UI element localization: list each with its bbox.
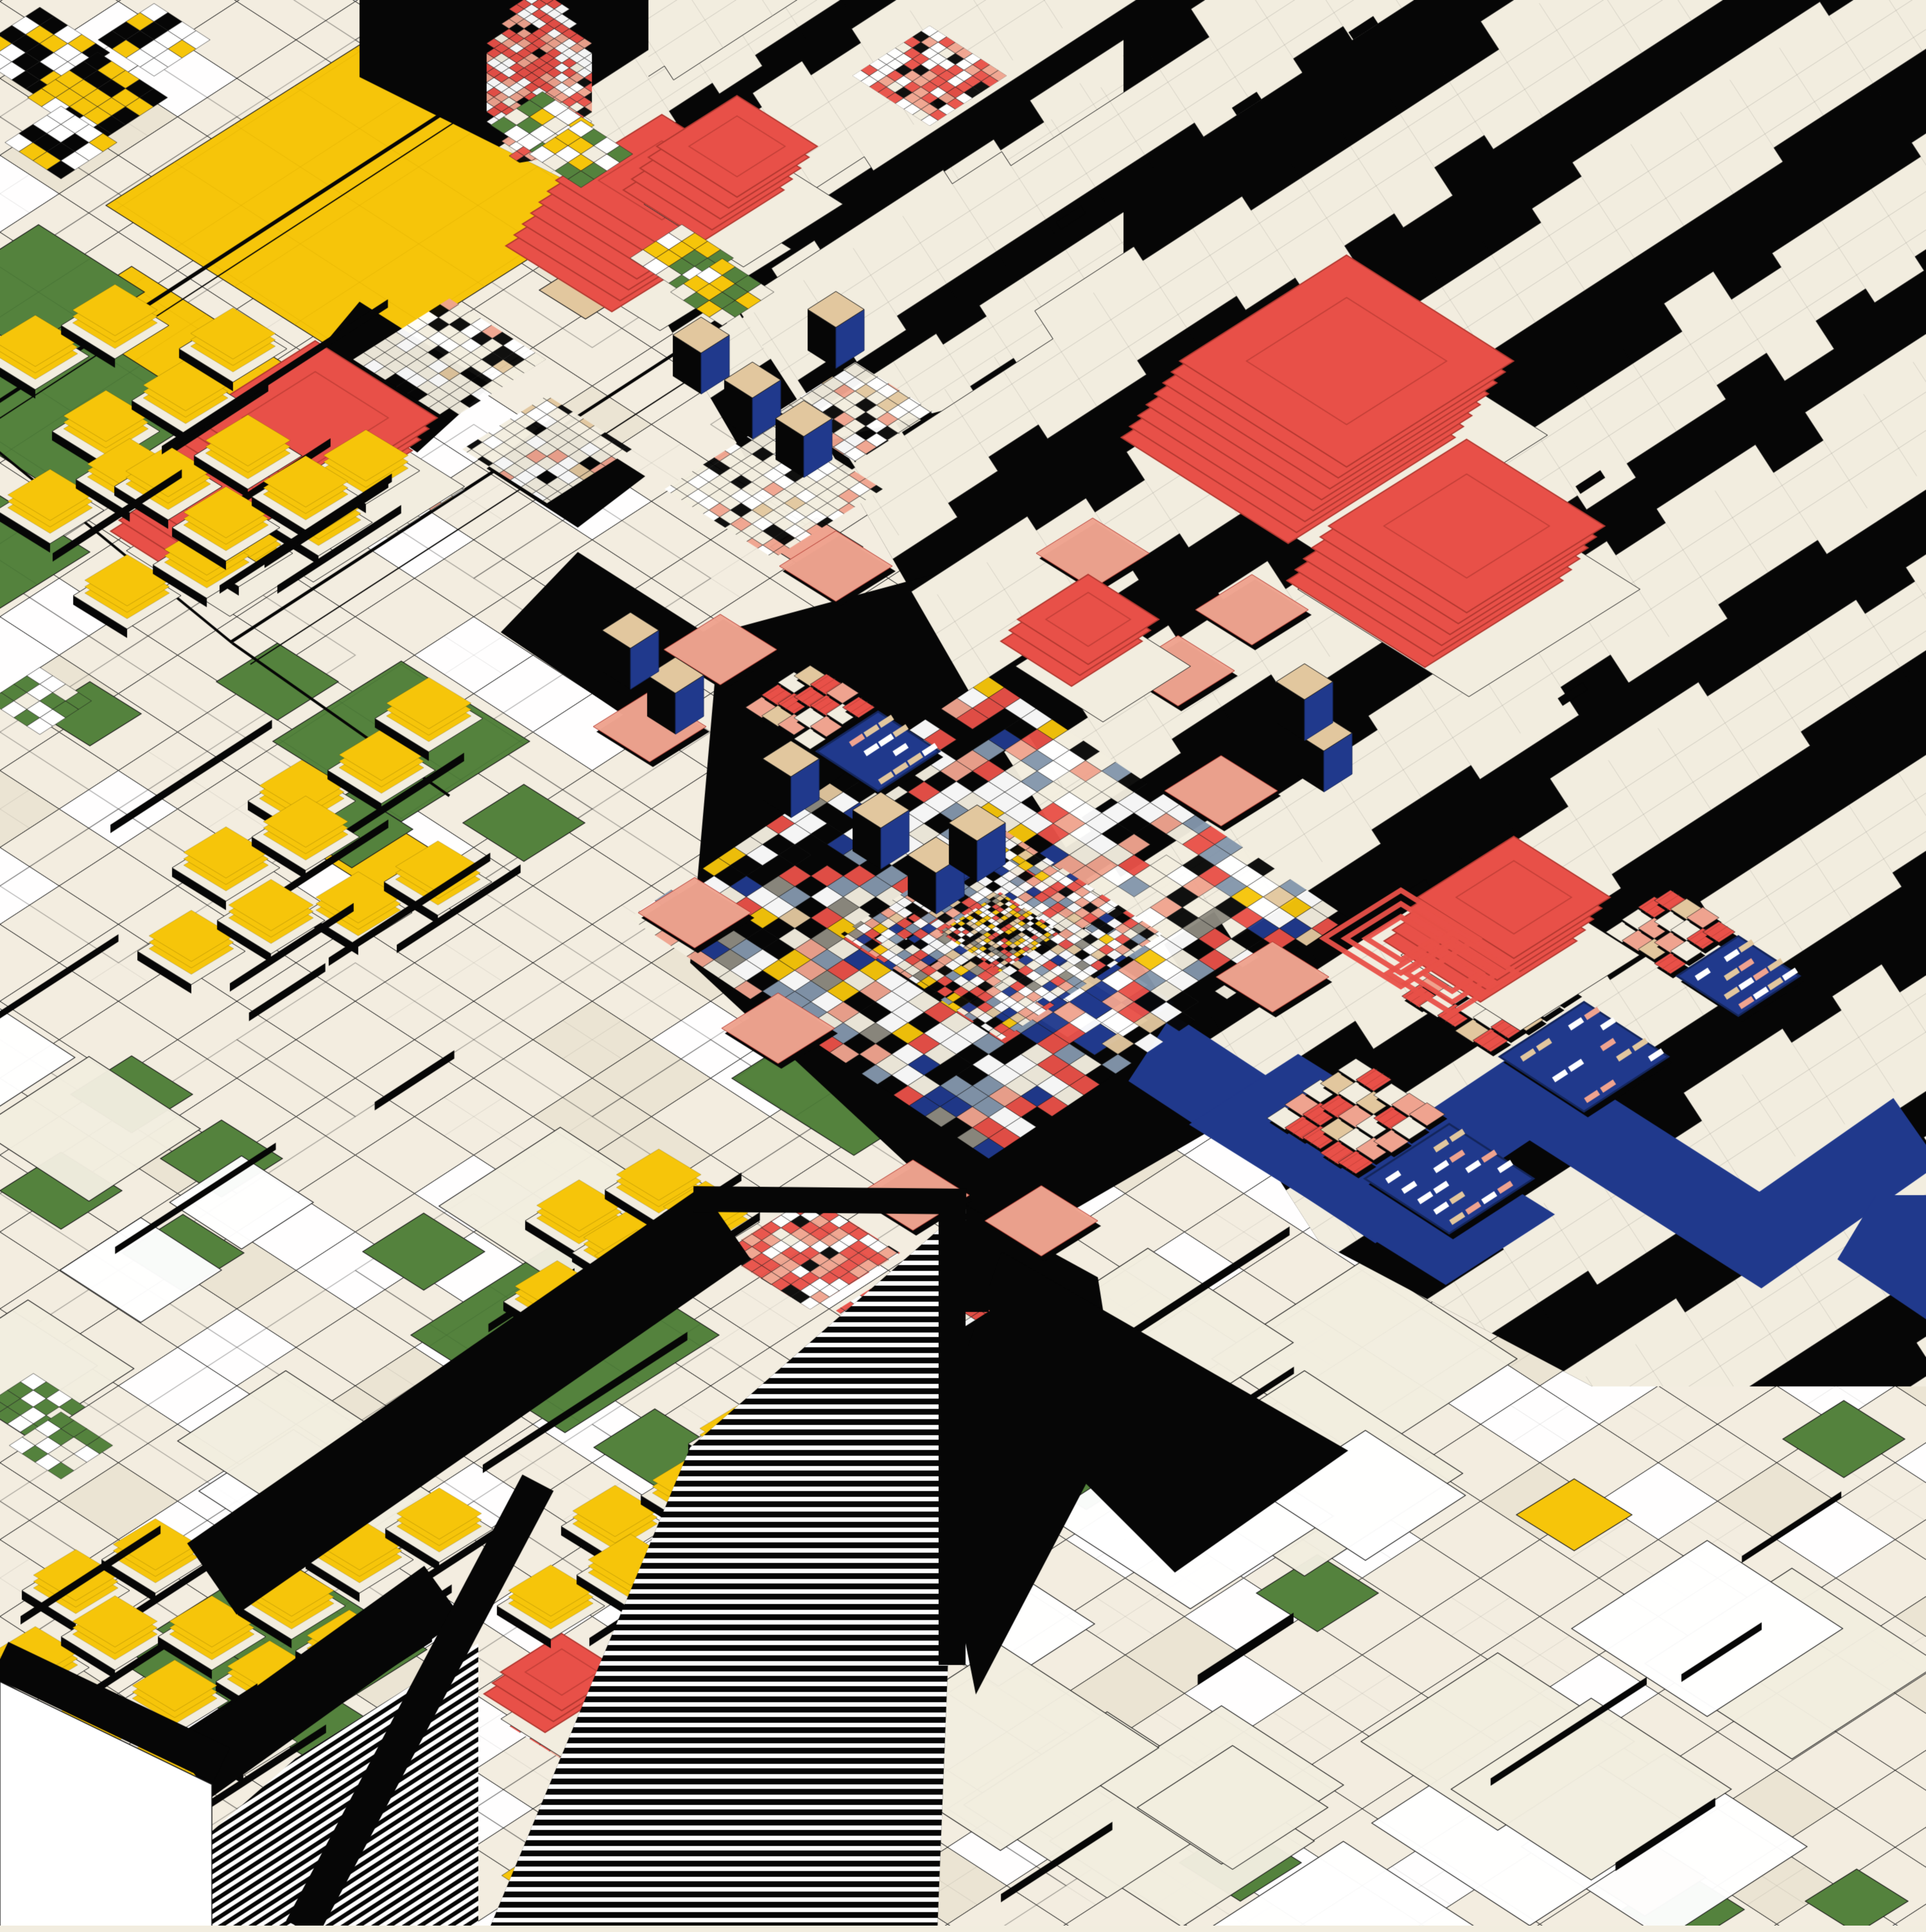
artwork-viewport bbox=[0, 0, 1926, 1926]
generative-isometric-artwork-canvas bbox=[0, 0, 1926, 1926]
